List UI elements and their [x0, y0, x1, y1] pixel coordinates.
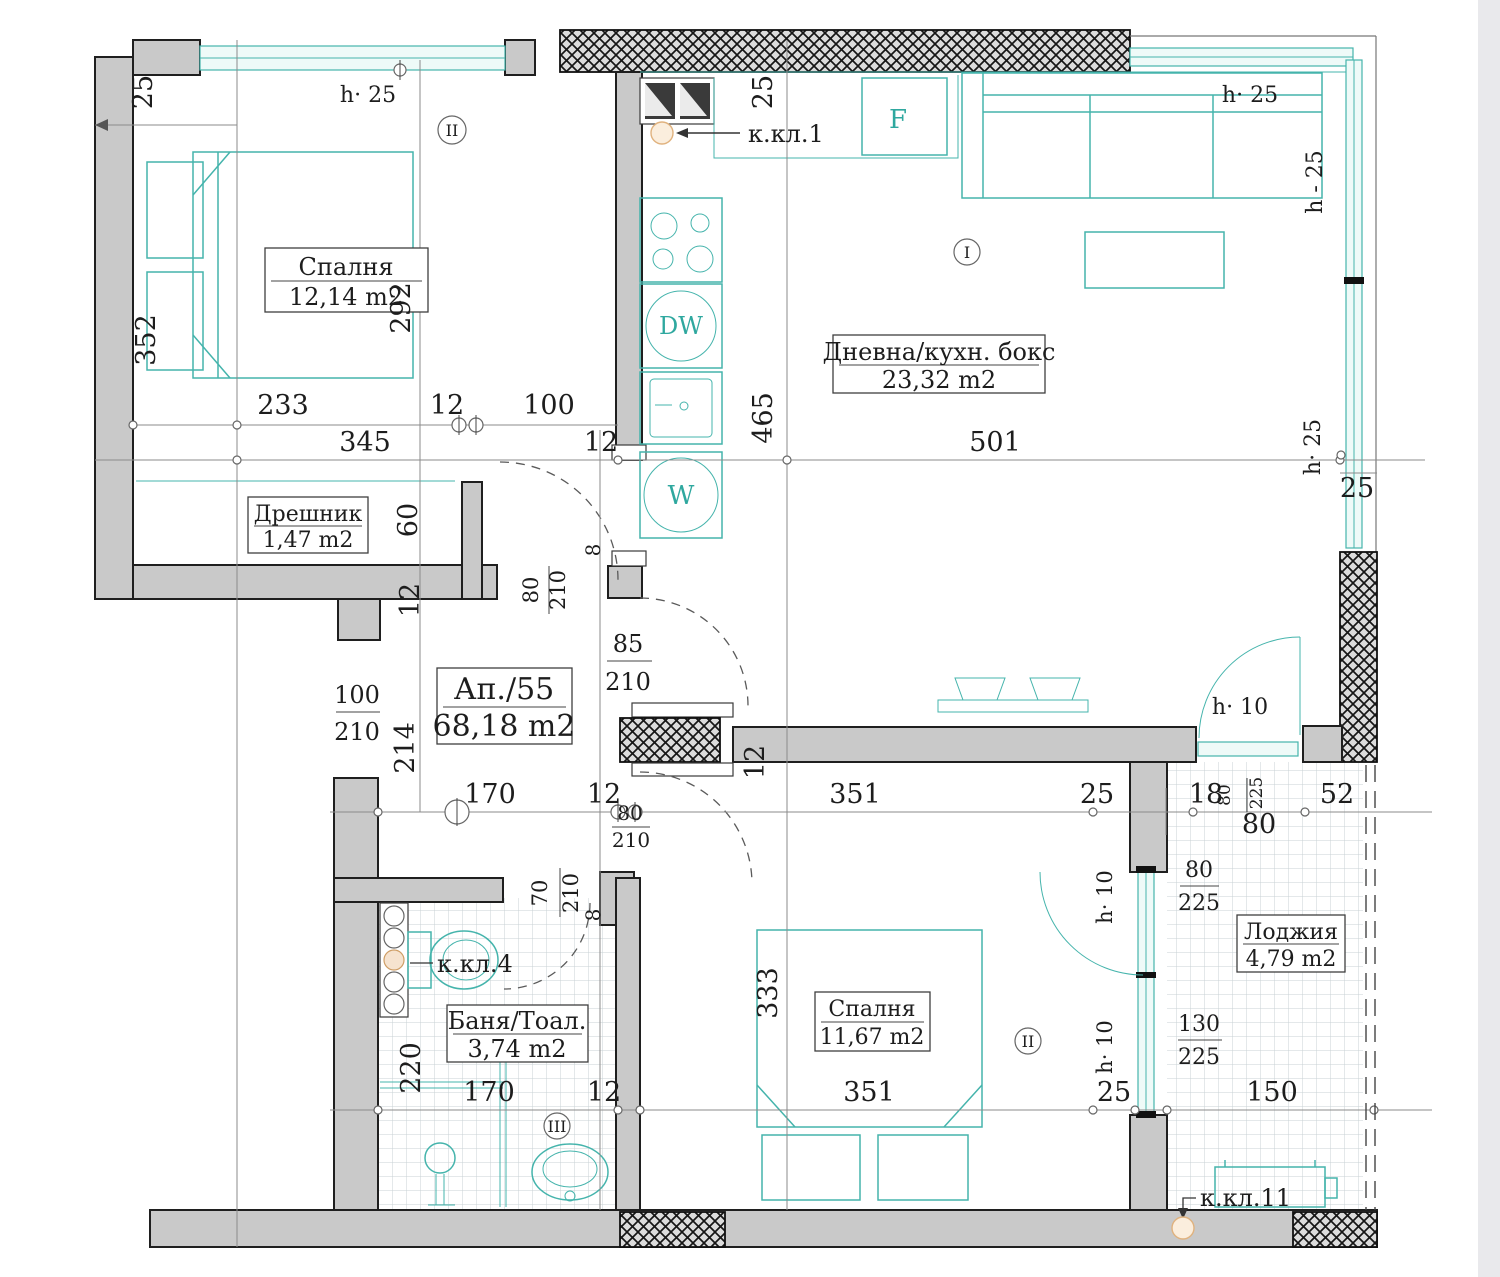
wall-interior [733, 727, 1196, 762]
page-edge [1478, 0, 1500, 1277]
wall-hatched-bottom-right [1293, 1212, 1377, 1247]
wall-step [338, 599, 380, 640]
wall-pier [1130, 762, 1167, 872]
dining-table [938, 678, 1088, 712]
marker-III: III [548, 1117, 567, 1136]
height-label: h· 10 [1093, 870, 1117, 924]
dim: 333 [753, 967, 784, 1019]
dim: 12 [584, 427, 618, 458]
door-dim: 210 [559, 873, 583, 913]
dim: 351 [843, 1077, 895, 1108]
loggia-door-sill [1198, 742, 1298, 756]
room-name: Дневна/кухн. бокс [823, 338, 1056, 366]
door-dim: 80 [617, 801, 642, 825]
height-label: h· 25 [340, 83, 396, 108]
wall-kitchen-foot [608, 566, 642, 598]
dim: 220 [396, 1042, 427, 1094]
wall-pier [462, 482, 482, 599]
height-label: h· 25 [1301, 419, 1326, 475]
dim: 25 [748, 75, 779, 109]
wall-bath-left [334, 778, 378, 1210]
door-dim: 210 [612, 828, 650, 852]
dim: 214 [390, 722, 421, 774]
entry-jamb-bottom [632, 763, 733, 776]
room-area: 23,32 m2 [882, 366, 996, 394]
label-bedroom2: Спалня 11,67 m2 [815, 992, 930, 1051]
dim: 150 [1246, 1077, 1298, 1108]
wall-hatched-right [1340, 552, 1377, 762]
dim: 12 [587, 1077, 621, 1108]
dim: 351 [829, 779, 881, 810]
wall-kitchen [616, 72, 642, 460]
shaft-circle-k11 [1172, 1217, 1194, 1239]
door-dim: 70 [528, 880, 552, 907]
marker-I: I [964, 243, 970, 262]
window-mullion [1136, 866, 1156, 873]
wall-pier [1303, 726, 1342, 762]
coffee-table [1085, 232, 1224, 288]
room-name: Спалня [828, 997, 915, 1022]
door-dim: 80 [519, 577, 543, 604]
marker-II-b: II [1022, 1032, 1035, 1051]
washer-letter: W [668, 481, 695, 511]
room-name: Баня/Тоал. [448, 1007, 587, 1035]
wall-pier [1130, 1115, 1167, 1212]
dim: 352 [131, 314, 162, 366]
entry-door-leaf [620, 718, 720, 762]
dim: 12 [587, 779, 621, 810]
dim: 25 [128, 75, 159, 109]
dim: 80 [1215, 784, 1235, 806]
room-area: 3,74 m2 [467, 1035, 566, 1063]
dim: 100 [523, 390, 575, 421]
door-dim: 225 [1178, 1045, 1220, 1070]
dim: 501 [969, 427, 1021, 458]
wall-bath-right [616, 878, 640, 1212]
wall-hatched-bottom [620, 1212, 725, 1247]
height-label: h - 25 [1303, 150, 1328, 214]
dim: 8 [581, 909, 605, 922]
dim: 233 [257, 390, 309, 421]
furniture [147, 73, 1337, 1207]
wall-bath-top [334, 878, 503, 902]
door-arc-bedroom2 [640, 772, 752, 884]
label-closet: Дрешник 1,47 m2 [248, 497, 368, 553]
door-arc-balcony [1040, 872, 1143, 975]
dim: 170 [463, 1077, 515, 1108]
dim: 170 [464, 779, 516, 810]
door-dim: 210 [605, 668, 651, 696]
shaft-label-k1: к.кл.1 [748, 120, 824, 148]
apartment-number: Ап./55 [454, 672, 555, 707]
label-apartment: Ап./55 68,18 m2 [433, 668, 576, 744]
fridge-letter: F [889, 105, 907, 135]
dim: 25 [1097, 1077, 1131, 1108]
wall-hatched-top [560, 30, 1130, 72]
wall-closet-bottom [133, 565, 497, 599]
door-dim: 85 [613, 630, 644, 658]
dim: 225 [1247, 777, 1267, 809]
height-label: h· 25 [1222, 83, 1278, 108]
window-mullion [1344, 277, 1364, 284]
room-area: 4,79 m2 [1246, 947, 1337, 972]
door-dim: 100 [334, 681, 380, 709]
door-dim: 210 [334, 718, 380, 746]
dim: 12 [430, 390, 464, 421]
height-label: h· 10 [1093, 1020, 1117, 1074]
stove [640, 198, 722, 282]
wall-pier [133, 40, 200, 75]
label-bath: Баня/Тоал. 3,74 m2 [447, 1005, 588, 1063]
shaft-label-k4: к.кл.4 [437, 950, 513, 978]
dim: 292 [386, 282, 417, 334]
shaft-label-k11: к.кл.11 [1200, 1184, 1291, 1212]
bed-bedroom2 [757, 930, 982, 1200]
room-name: Спалня [298, 253, 393, 281]
marker-II: II [446, 121, 459, 140]
door-dim: 210 [546, 570, 570, 610]
door-dim: 80 [1185, 858, 1213, 883]
dim: 60 [393, 503, 424, 537]
wall-pier [505, 40, 535, 75]
entry-jamb-top [632, 703, 733, 717]
height-label: h· 10 [1212, 695, 1268, 720]
room-area: 11,67 m2 [820, 1025, 925, 1050]
floor-plan-drawing: Спалня 12,14 m2 Дневна/кухн. бокс 23,32 … [0, 0, 1500, 1277]
floor-plan-page: Спалня 12,14 m2 Дневна/кухн. бокс 23,32 … [0, 0, 1500, 1277]
door-dim: 225 [1178, 891, 1220, 916]
apartment-area: 68,18 m2 [433, 709, 576, 744]
door-arc-entry [640, 598, 748, 706]
dim: 8 [581, 544, 605, 557]
shaft-circle-k1 [651, 122, 673, 144]
loggia-open-edge [1366, 765, 1375, 1210]
dim: 12 [740, 745, 771, 779]
dim: 12 [395, 583, 426, 617]
dim: 80 [1242, 809, 1276, 840]
room-name: Лоджия [1244, 920, 1338, 945]
dim: 465 [748, 392, 779, 444]
room-area: 1,47 m2 [263, 528, 354, 553]
dim: 25 [1340, 473, 1374, 504]
label-loggia: Лоджия 4,79 m2 [1237, 915, 1345, 972]
dishwasher-letter: DW [659, 312, 703, 340]
door-dim: 130 [1178, 1012, 1220, 1037]
door-arc-loggia [1199, 637, 1300, 738]
label-living: Дневна/кухн. бокс 23,32 m2 [823, 335, 1056, 394]
room-name: Дрешник [254, 502, 363, 527]
dim: 345 [339, 427, 391, 458]
wall-left [95, 57, 133, 599]
shaft-dot [384, 950, 404, 970]
dim: 52 [1320, 779, 1354, 810]
dim: 25 [1080, 779, 1114, 810]
